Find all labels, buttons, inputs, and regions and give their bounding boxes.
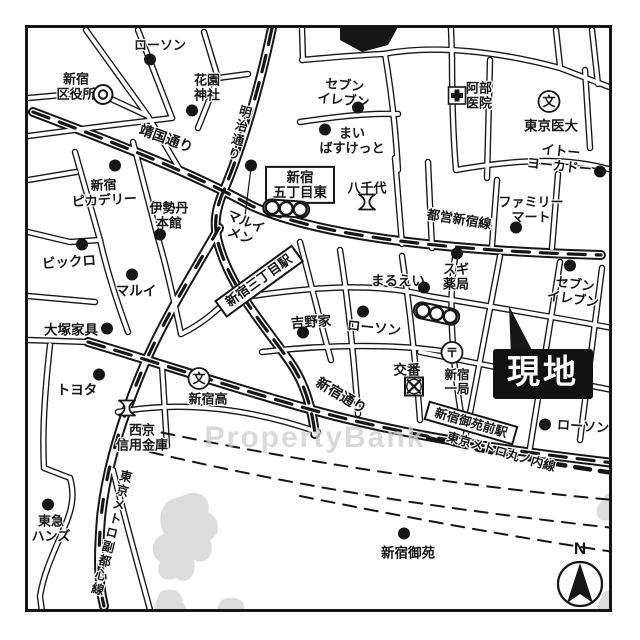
- poi-dot-icon: [291, 321, 315, 350]
- poi-dot-icon: [180, 99, 204, 128]
- poi-dot-icon: [36, 493, 60, 522]
- map-label-genchi-site: 現地: [493, 349, 593, 399]
- poi-dot-icon: [313, 118, 337, 147]
- poi-dot-icon: [445, 242, 469, 271]
- compass-rose: N: [556, 540, 604, 614]
- poi-dot-icon: [351, 300, 375, 329]
- poi-dot-icon: [533, 413, 557, 442]
- poi-dot-icon: [87, 363, 111, 392]
- map-label-ward-office: 新宿 区役所: [56, 72, 95, 101]
- bank-icon: [115, 398, 139, 427]
- poi-dot-icon: [504, 216, 528, 245]
- poi-dot-icon: [95, 317, 119, 346]
- bank-icon: [355, 192, 379, 221]
- traffic-signal-icon: [259, 197, 313, 226]
- map-canvas: ローソン新宿 区役所花園 神社靖国通り明治通りセブン イレブンまい ばすけっと阿…: [0, 0, 640, 640]
- compass-arrow-icon: [556, 557, 604, 609]
- map-label-ito-yokado: イトー ヨーカドー: [526, 141, 594, 177]
- poi-dot-icon: [138, 48, 162, 77]
- svg-text:〒: 〒: [446, 346, 459, 360]
- svg-text:文: 文: [192, 371, 206, 386]
- poi-dot-icon: [239, 154, 263, 183]
- map-label-lawson-br: ローソン: [557, 418, 610, 436]
- compass-north-label: N: [556, 540, 604, 557]
- post-office-icon: 〒: [440, 341, 464, 370]
- map-label-fukutoshin-line: 東京メトロ副都心線: [88, 468, 132, 598]
- poi-dot-icon: [70, 233, 94, 262]
- school-icon: 文: [537, 90, 561, 119]
- hospital-icon: [445, 84, 469, 113]
- map-label-shinjuku-post: 新宿 一局: [444, 368, 469, 396]
- school-icon: 文: [187, 367, 211, 396]
- poi-dot-icon: [558, 254, 582, 283]
- double-circle-icon: [91, 83, 115, 112]
- map-label-tokyo-idai: 東京医大: [524, 118, 578, 133]
- map-label-abe-clinic: 阿部 医院: [466, 81, 492, 110]
- police-icon: [402, 375, 426, 404]
- map-label-saikyo-shinkin: 西京 信用金庫: [116, 423, 168, 452]
- poi-dot-icon: [588, 160, 612, 189]
- map-label-sanchome-station: 新宿三丁目駅: [214, 244, 304, 317]
- traffic-signal-icon: [408, 298, 464, 333]
- poi-dot-icon: [120, 263, 144, 292]
- poi-dot-icon: [103, 154, 127, 183]
- label-layer: ローソン新宿 区役所花園 神社靖国通り明治通りセブン イレブンまい ばすけっと阿…: [0, 0, 640, 640]
- svg-text:文: 文: [542, 94, 556, 109]
- map-label-otsuka-kagu: 大塚家具: [44, 322, 98, 337]
- poi-dot-icon: [346, 96, 370, 125]
- map-label-toei-shinjuku-line: 都営新宿線: [426, 208, 492, 233]
- poi-dot-icon: [392, 522, 416, 551]
- map-label-shinjuku-dori: 新宿通り: [313, 375, 369, 417]
- poi-dot-icon: [148, 223, 172, 252]
